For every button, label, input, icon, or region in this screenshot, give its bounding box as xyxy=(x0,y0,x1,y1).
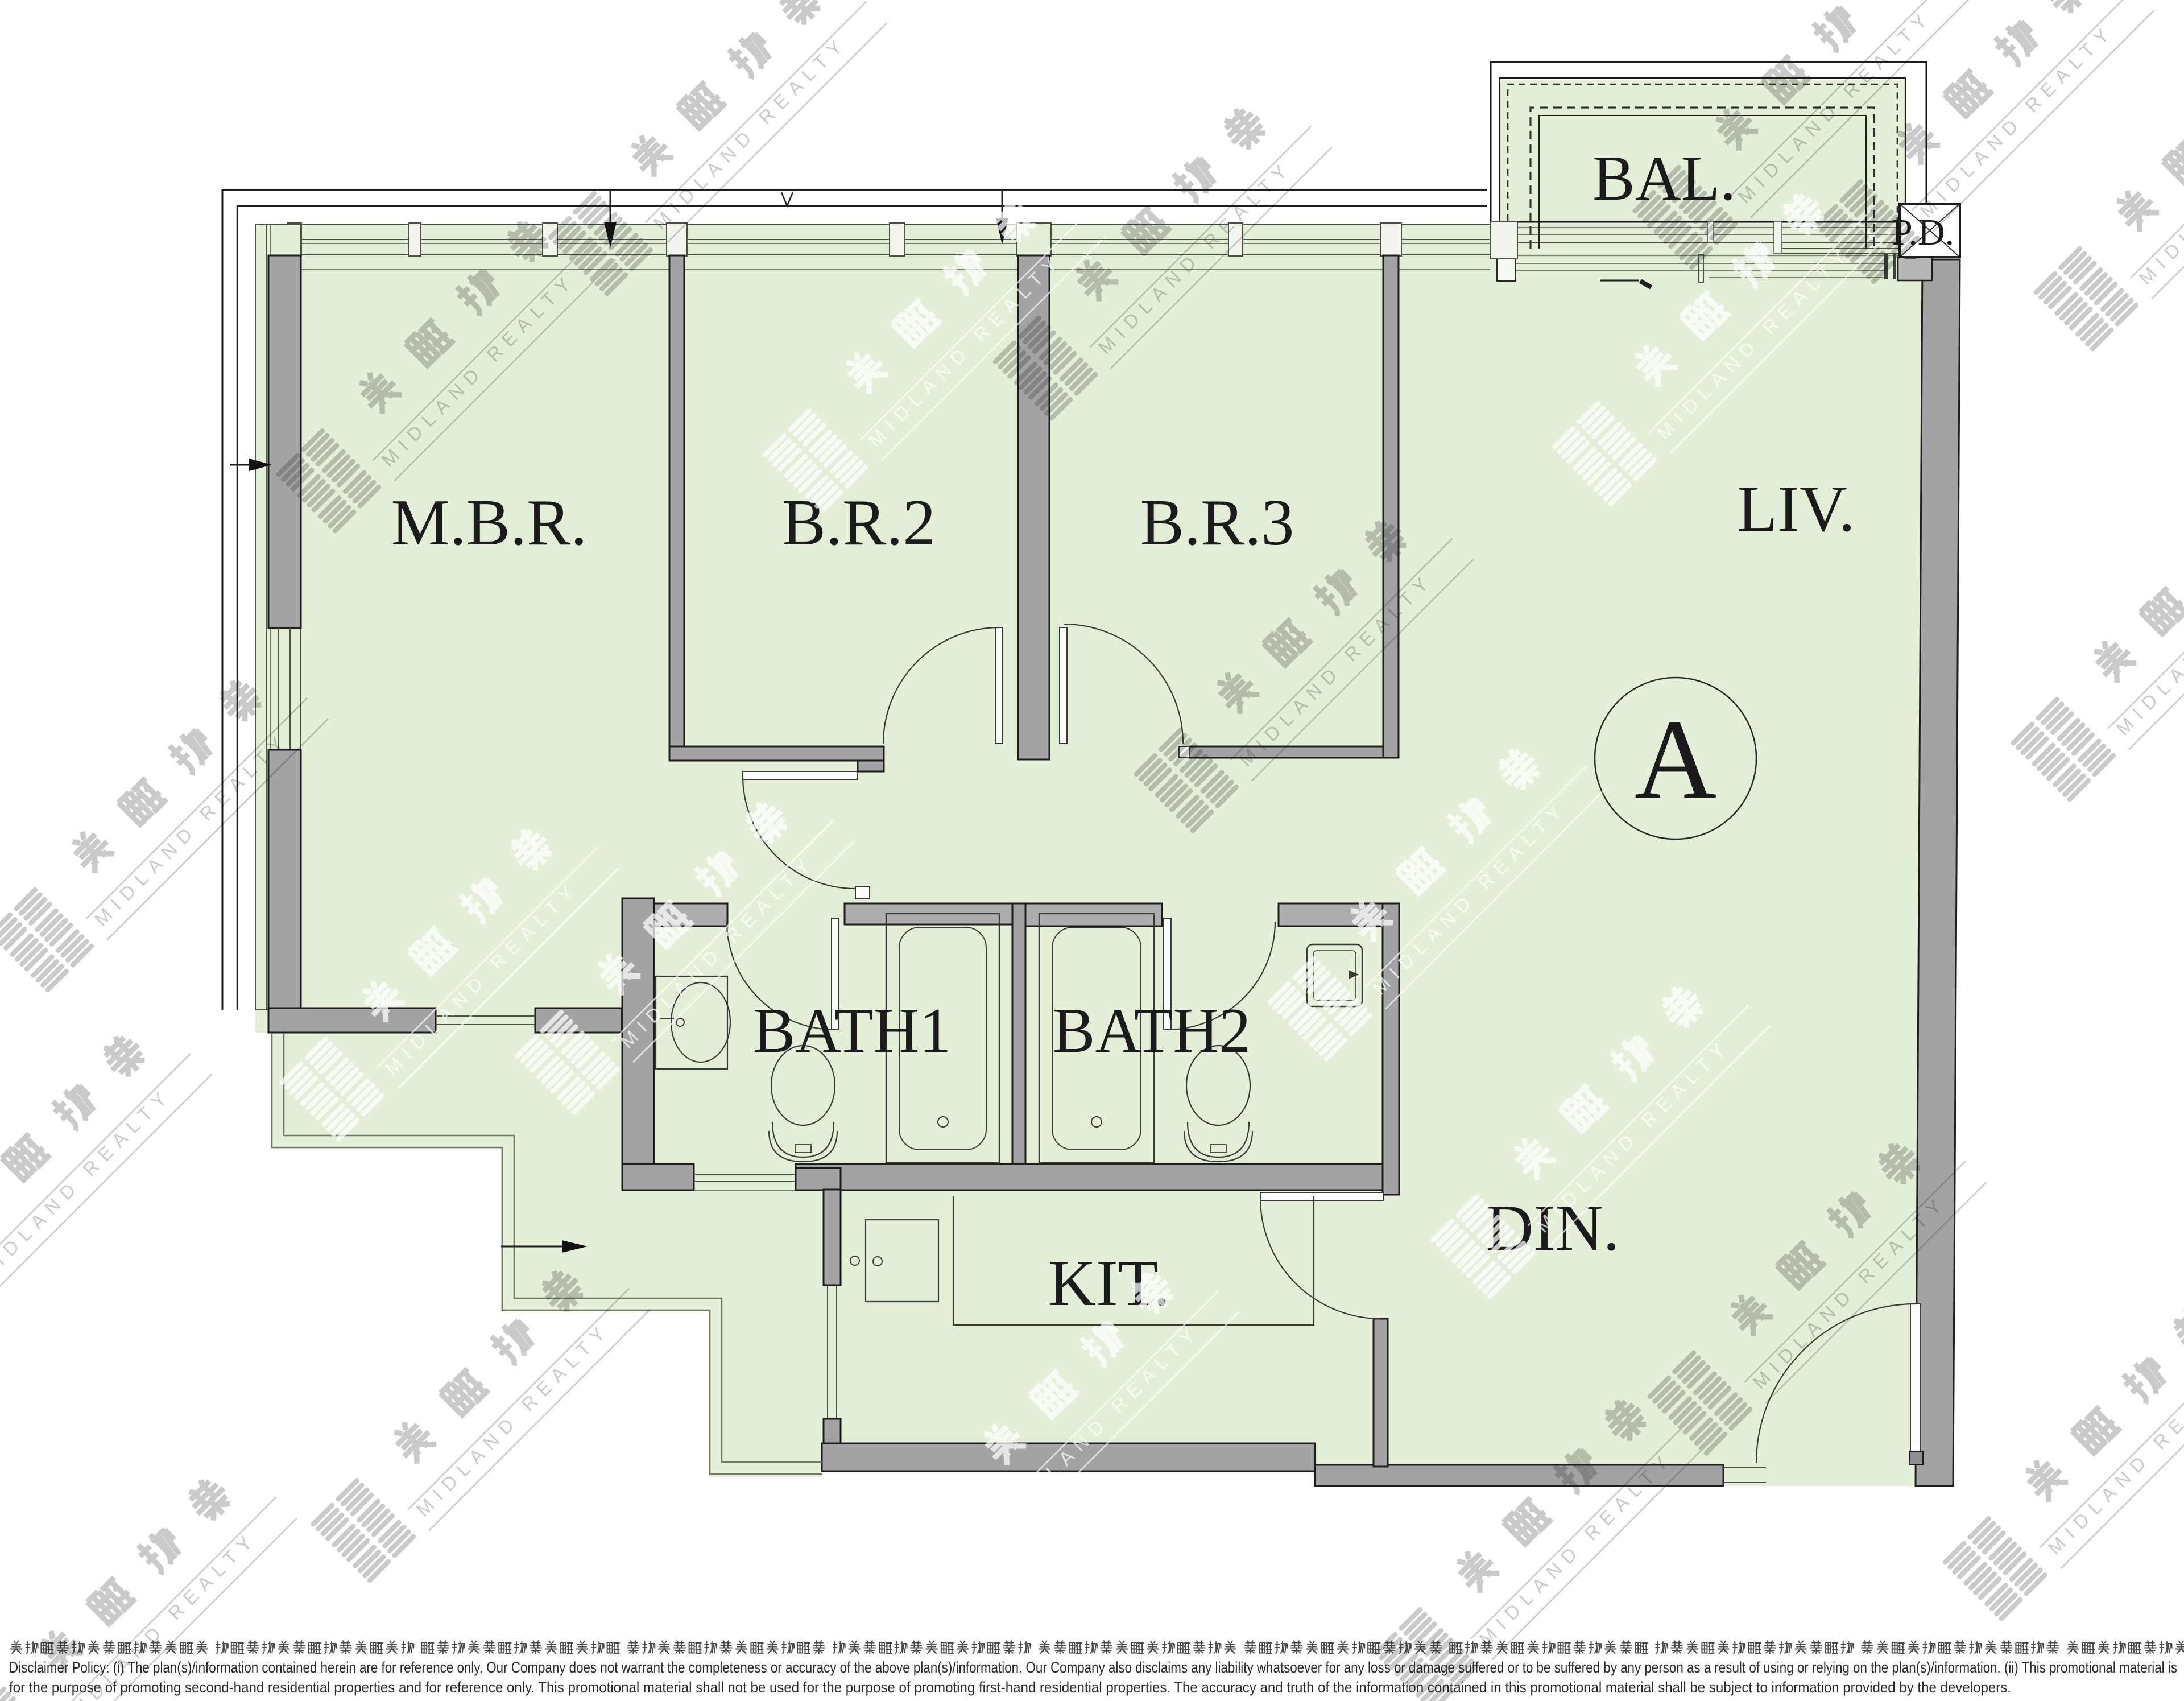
svg-text:for the purpose of promoting s: for the purpose of promoting second-hand… xyxy=(9,1679,2011,1696)
svg-text:B.R.3: B.R.3 xyxy=(1140,486,1294,559)
svg-text:A: A xyxy=(1635,697,1716,823)
svg-text:BATH1: BATH1 xyxy=(753,996,951,1066)
svg-text:B.R.2: B.R.2 xyxy=(782,486,936,559)
svg-text:LIV.: LIV. xyxy=(1737,473,1855,546)
svg-text:BATH2: BATH2 xyxy=(1053,996,1251,1066)
svg-text:Disclaimer Policy: (i) The pla: Disclaimer Policy: (i) The plan(s)/infor… xyxy=(9,1659,2177,1676)
svg-text:M.B.R.: M.B.R. xyxy=(391,486,588,559)
